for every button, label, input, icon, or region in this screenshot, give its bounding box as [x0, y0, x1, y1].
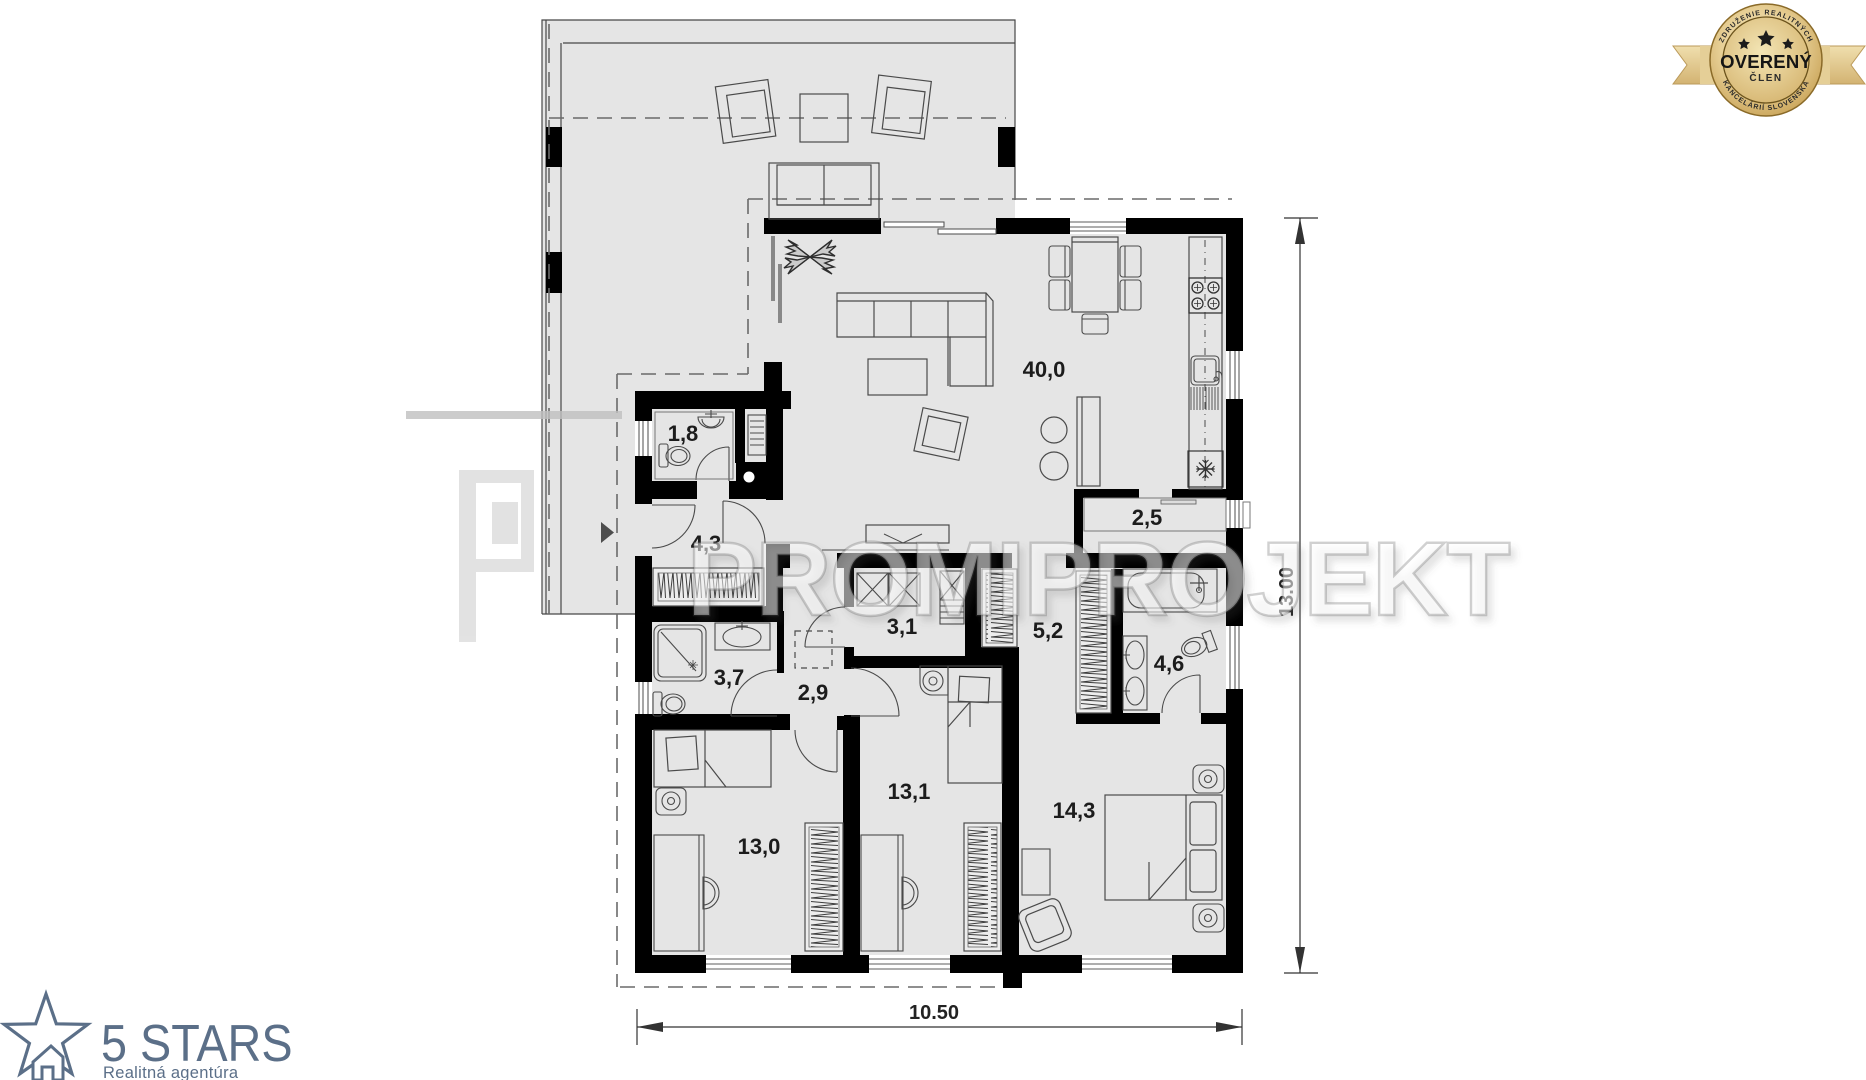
svg-text:13,1: 13,1: [888, 779, 931, 804]
svg-text:4,6: 4,6: [1154, 651, 1185, 676]
svg-text:1,8: 1,8: [668, 421, 699, 446]
svg-text:10.50: 10.50: [909, 1002, 959, 1024]
svg-text:2,9: 2,9: [798, 680, 829, 705]
svg-text:14,3: 14,3: [1053, 798, 1096, 823]
svg-text:13,0: 13,0: [738, 834, 781, 859]
svg-text:40,0: 40,0: [1023, 357, 1066, 382]
svg-text:PROMIPROJEKT: PROMIPROJEKT: [687, 521, 1510, 638]
svg-text:OVERENÝ: OVERENÝ: [1720, 51, 1812, 72]
svg-text:3,7: 3,7: [714, 665, 745, 690]
svg-text:Realitná agentúra: Realitná agentúra: [103, 1064, 239, 1080]
svg-text:ČLEN: ČLEN: [1749, 71, 1782, 84]
